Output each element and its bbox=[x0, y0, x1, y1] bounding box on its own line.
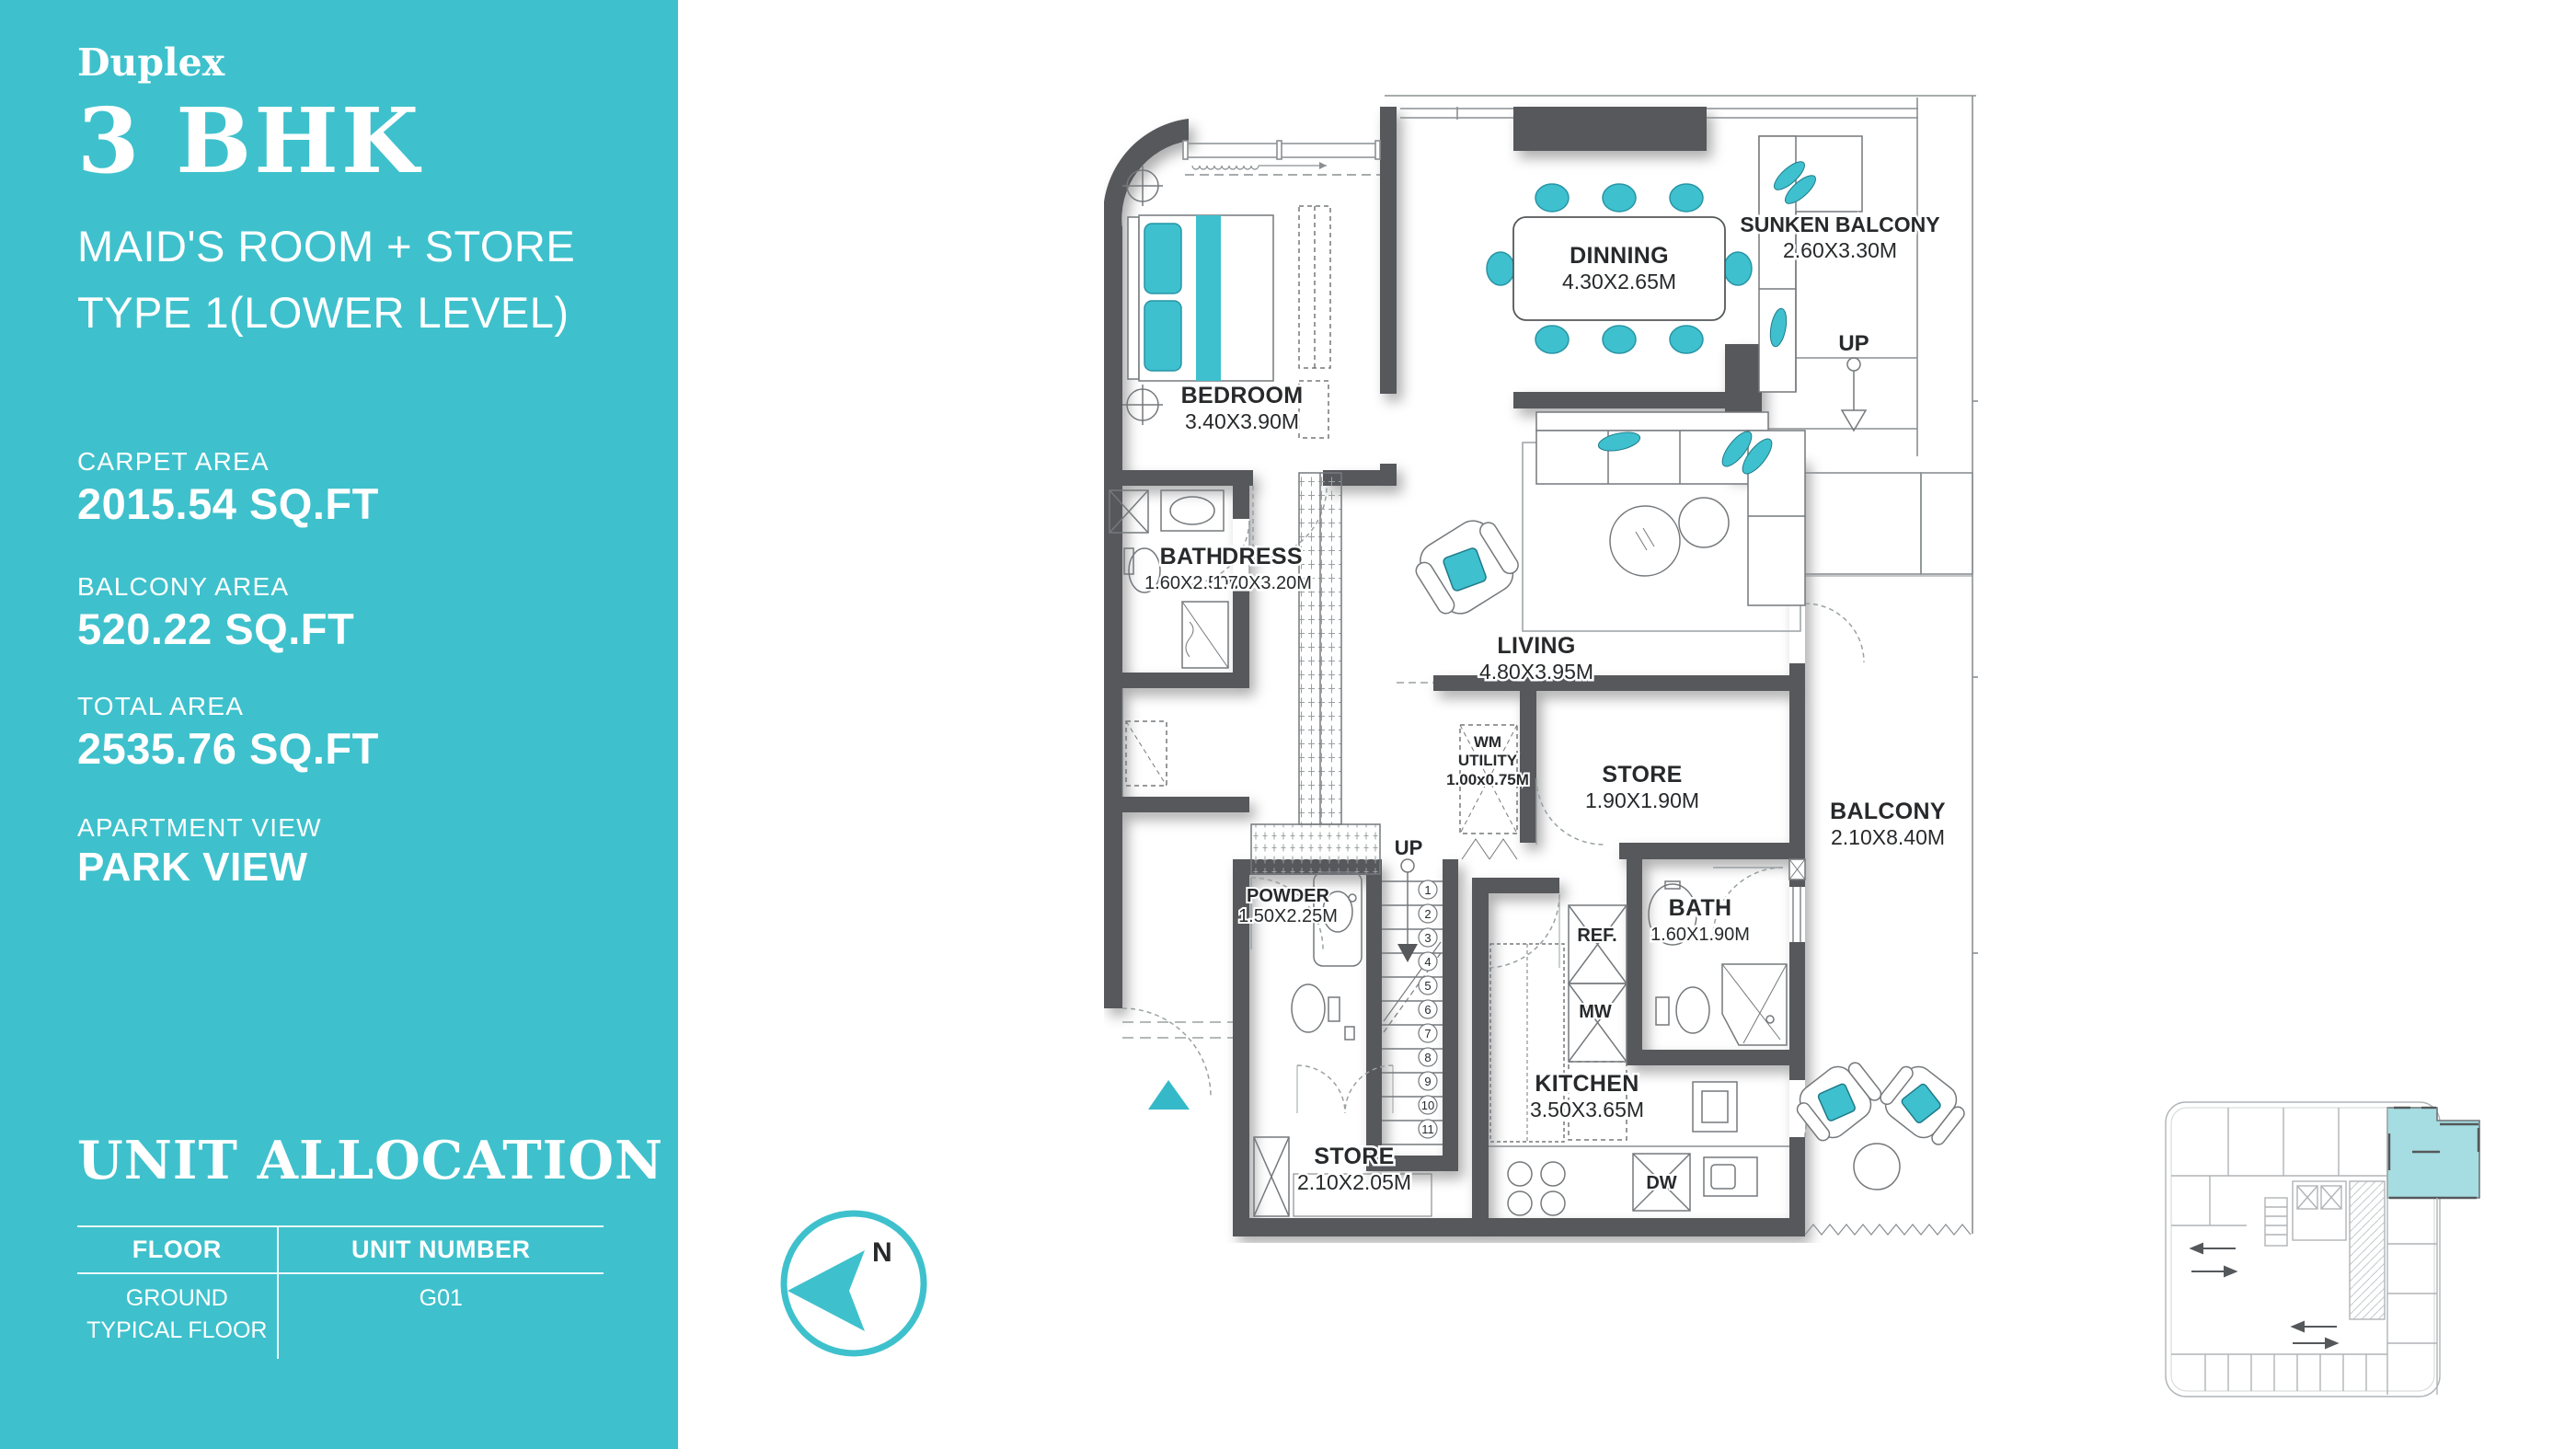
up-upper-label: UP bbox=[1838, 331, 1869, 356]
powder-label: POWDER bbox=[1247, 886, 1330, 906]
unit-number-cell: G01 bbox=[277, 1274, 604, 1359]
living-label: LIVING bbox=[1497, 633, 1575, 659]
wm-label: WM bbox=[1474, 733, 1501, 751]
dw-label: DW bbox=[1646, 1173, 1676, 1193]
dress-dim: 1.70X3.20M bbox=[1213, 573, 1312, 593]
bath2-label: BATH bbox=[1669, 895, 1732, 921]
carpet-area-value: 2015.54 SQ.FT bbox=[77, 478, 379, 529]
sunken-balcony-label: SUNKEN BALCONY bbox=[1740, 213, 1939, 236]
upper-stair-arrow bbox=[1842, 358, 1866, 431]
floor-plan: BEDROOM 3.40X3.90M DINNING 4.30X2.65M SU… bbox=[1104, 88, 1978, 1248]
north-arrow-icon bbox=[788, 1250, 865, 1331]
floor-plan-svg: BEDROOM 3.40X3.90M DINNING 4.30X2.65M SU… bbox=[1104, 88, 1978, 1243]
wardrobe bbox=[1299, 206, 1330, 438]
store2-dim: 2.10X2.05M bbox=[1297, 1170, 1411, 1194]
stair-number: 10 bbox=[1421, 1098, 1434, 1112]
carpet-area-label: CARPET AREA bbox=[77, 447, 270, 477]
powder-dim: 1.50X2.25M bbox=[1238, 906, 1338, 926]
balcony-area-label: BALCONY AREA bbox=[77, 572, 289, 602]
allocation-data-row: GROUND TYPICAL FLOOR G01 bbox=[77, 1274, 604, 1359]
unit-subtitle-2: TYPE 1(LOWER LEVEL) bbox=[77, 287, 569, 338]
stair-number: 5 bbox=[1424, 979, 1431, 993]
compass-svg: N bbox=[771, 1201, 937, 1366]
dining-dim: 4.30X2.65M bbox=[1562, 270, 1676, 293]
program-type: Duplex bbox=[77, 40, 224, 85]
north-label: N bbox=[872, 1237, 892, 1268]
unit-number-column-header: UNIT NUMBER bbox=[277, 1227, 604, 1272]
floor-line-1: GROUND bbox=[77, 1282, 277, 1315]
apartment-view-value: PARK VIEW bbox=[77, 845, 308, 891]
stair-number: 2 bbox=[1424, 907, 1431, 921]
key-plan-svg bbox=[2155, 1087, 2486, 1414]
stair-number: 11 bbox=[1421, 1122, 1434, 1136]
stair-number: 7 bbox=[1424, 1027, 1431, 1041]
stair-number: 8 bbox=[1424, 1051, 1431, 1064]
store1-dim: 1.90X1.90M bbox=[1585, 788, 1699, 812]
key-plan bbox=[2155, 1087, 2486, 1419]
kitchen-label: KITCHEN bbox=[1535, 1071, 1639, 1097]
bedroom-label: BEDROOM bbox=[1181, 383, 1304, 408]
store1-label: STORE bbox=[1602, 762, 1682, 788]
dining-set bbox=[1482, 179, 1757, 359]
balcony-dim: 2.10X8.40M bbox=[1831, 825, 1945, 849]
bath2-dim: 1.60X1.90M bbox=[1650, 925, 1750, 945]
unit-allocation-title: UNIT ALLOCATION bbox=[77, 1130, 663, 1191]
balcony-area-value: 520.22 SQ.FT bbox=[77, 604, 354, 654]
bath1-fixtures bbox=[1110, 490, 1228, 797]
store2-label: STORE bbox=[1314, 1144, 1394, 1169]
kitchen-dim: 3.50X3.65M bbox=[1530, 1098, 1644, 1121]
armchair bbox=[1407, 510, 1525, 624]
unit-allocation-table: FLOOR UNIT NUMBER GROUND TYPICAL FLOOR G… bbox=[77, 1225, 604, 1359]
balcony-seating bbox=[1789, 1052, 1972, 1190]
bedroom-dim: 3.40X3.90M bbox=[1185, 409, 1299, 433]
stair-number: 6 bbox=[1424, 1003, 1431, 1017]
bath1-label: BATH bbox=[1160, 544, 1224, 569]
living-furniture bbox=[1407, 412, 1805, 631]
bed bbox=[1128, 215, 1273, 381]
floor-column-header: FLOOR bbox=[77, 1227, 277, 1272]
dress-label: DRESS bbox=[1222, 544, 1303, 569]
floor-line-2: TYPICAL FLOOR bbox=[77, 1315, 277, 1347]
entry-marker-icon bbox=[1148, 1080, 1190, 1110]
stair-numbers: 1 2 3 4 5 6 7 8 9 10 11 bbox=[1419, 880, 1437, 1138]
total-area-value: 2535.76 SQ.FT bbox=[77, 723, 379, 774]
stair-number: 9 bbox=[1424, 1075, 1431, 1088]
unit-subtitle-1: MAID'S ROOM + STORE bbox=[77, 221, 575, 271]
unit-info-sidebar: Duplex 3 BHK MAID'S ROOM + STORE TYPE 1(… bbox=[0, 0, 678, 1449]
floorplan-brochure-page: { "colors": { "accent_teal": "#3EC1CC", … bbox=[0, 0, 2576, 1449]
stair-number: 4 bbox=[1424, 955, 1431, 969]
ref-label: REF. bbox=[1577, 926, 1616, 946]
stair-number: 3 bbox=[1424, 931, 1431, 945]
compass: N bbox=[771, 1201, 937, 1371]
wm-utility-dim: 1.00x0.75M bbox=[1446, 771, 1529, 788]
allocation-header-row: FLOOR UNIT NUMBER bbox=[77, 1227, 604, 1274]
dining-label: DINNING bbox=[1570, 243, 1669, 269]
apartment-view-label: APARTMENT VIEW bbox=[77, 813, 322, 843]
bath2-fixtures bbox=[1649, 859, 1805, 1045]
mw-label: MW bbox=[1579, 1002, 1612, 1022]
sunken-balcony-dim: 2.60X3.30M bbox=[1783, 238, 1897, 262]
utility-label: UTILITY bbox=[1458, 752, 1518, 769]
unit-title: 3 BHK bbox=[77, 88, 421, 193]
total-area-label: TOTAL AREA bbox=[77, 692, 244, 721]
floor-cell: GROUND TYPICAL FLOOR bbox=[77, 1274, 277, 1359]
dress-closet bbox=[1251, 473, 1380, 874]
balcony-label: BALCONY bbox=[1830, 799, 1946, 824]
stair-number: 1 bbox=[1424, 883, 1431, 897]
living-dim: 4.80X3.95M bbox=[1479, 660, 1593, 684]
up-stairs-label: UP bbox=[1395, 836, 1423, 859]
